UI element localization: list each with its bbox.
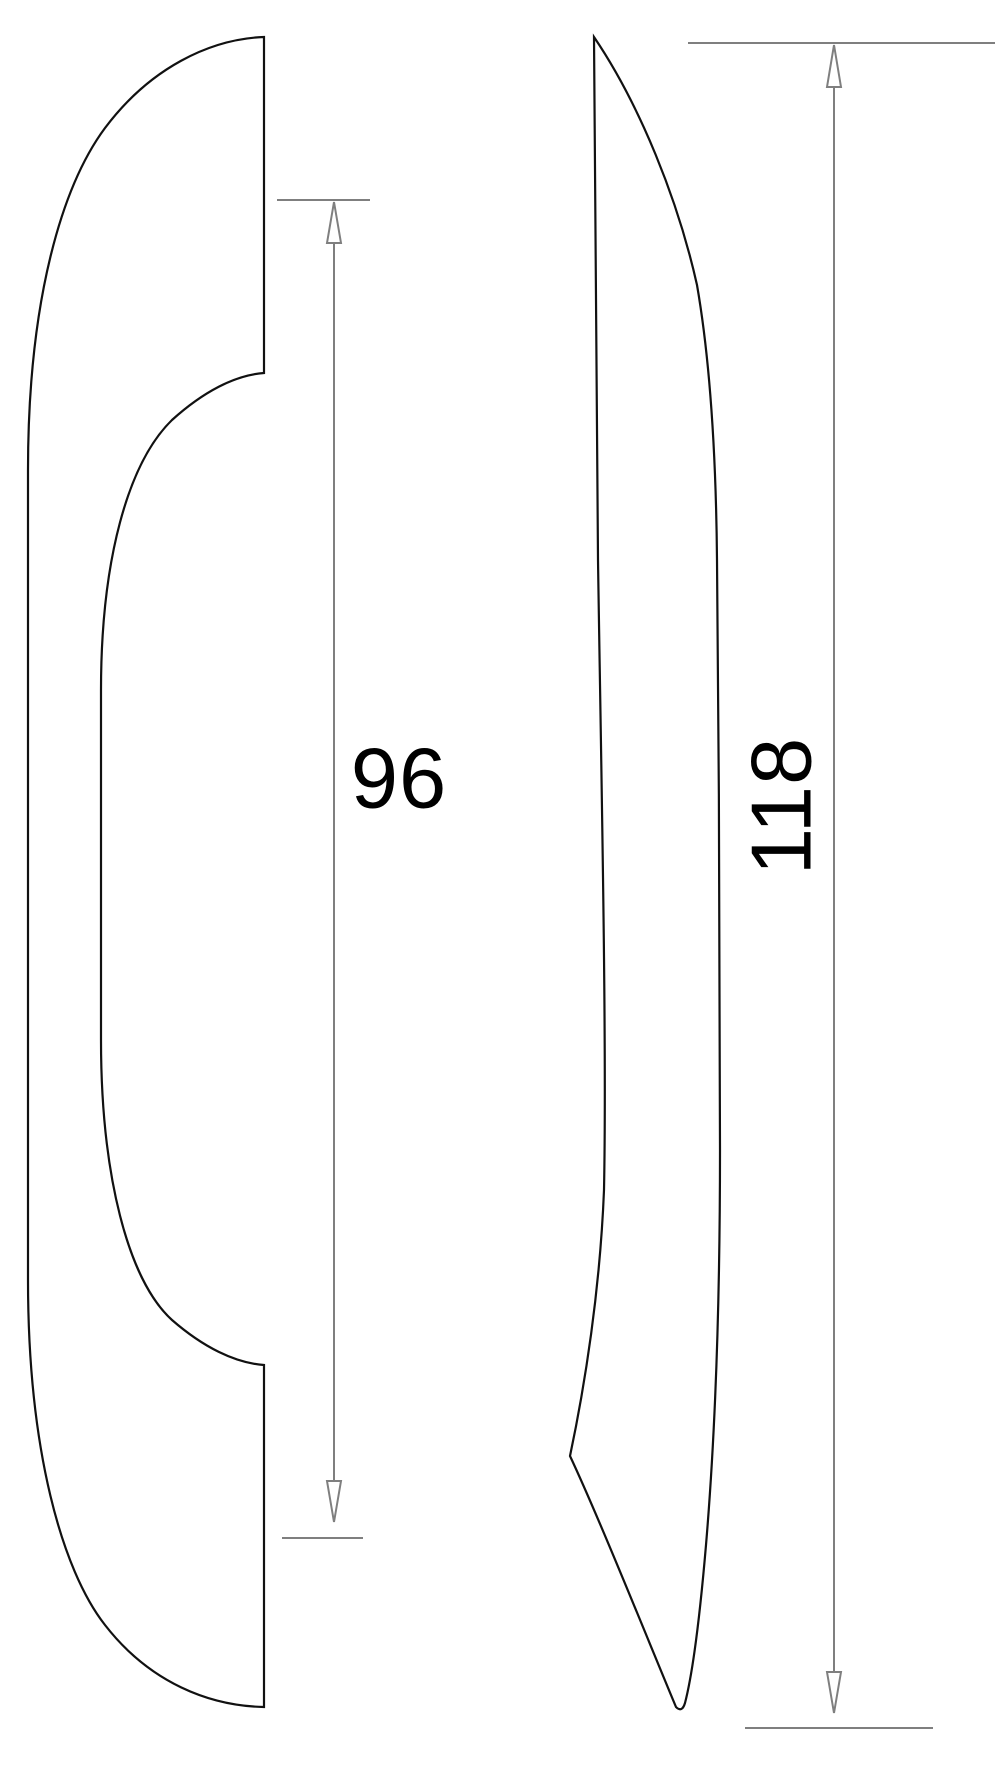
- front-profile-outline: [28, 37, 264, 1707]
- drawing-canvas: 96 118: [0, 0, 1000, 1792]
- dimension-96: 96: [277, 200, 447, 1538]
- front-view: [28, 37, 264, 1707]
- dimension-118: 118: [688, 43, 995, 1728]
- side-profile-outline: [570, 37, 720, 1709]
- arrow-up-icon: [327, 202, 341, 243]
- arrow-up-icon: [827, 45, 841, 87]
- dimension-118-label: 118: [735, 737, 830, 876]
- arrow-down-icon: [327, 1481, 341, 1522]
- dimension-96-label: 96: [351, 732, 448, 827]
- arrow-down-icon: [827, 1672, 841, 1713]
- side-view: [570, 37, 720, 1709]
- technical-drawing: 96 118: [0, 0, 1000, 1792]
